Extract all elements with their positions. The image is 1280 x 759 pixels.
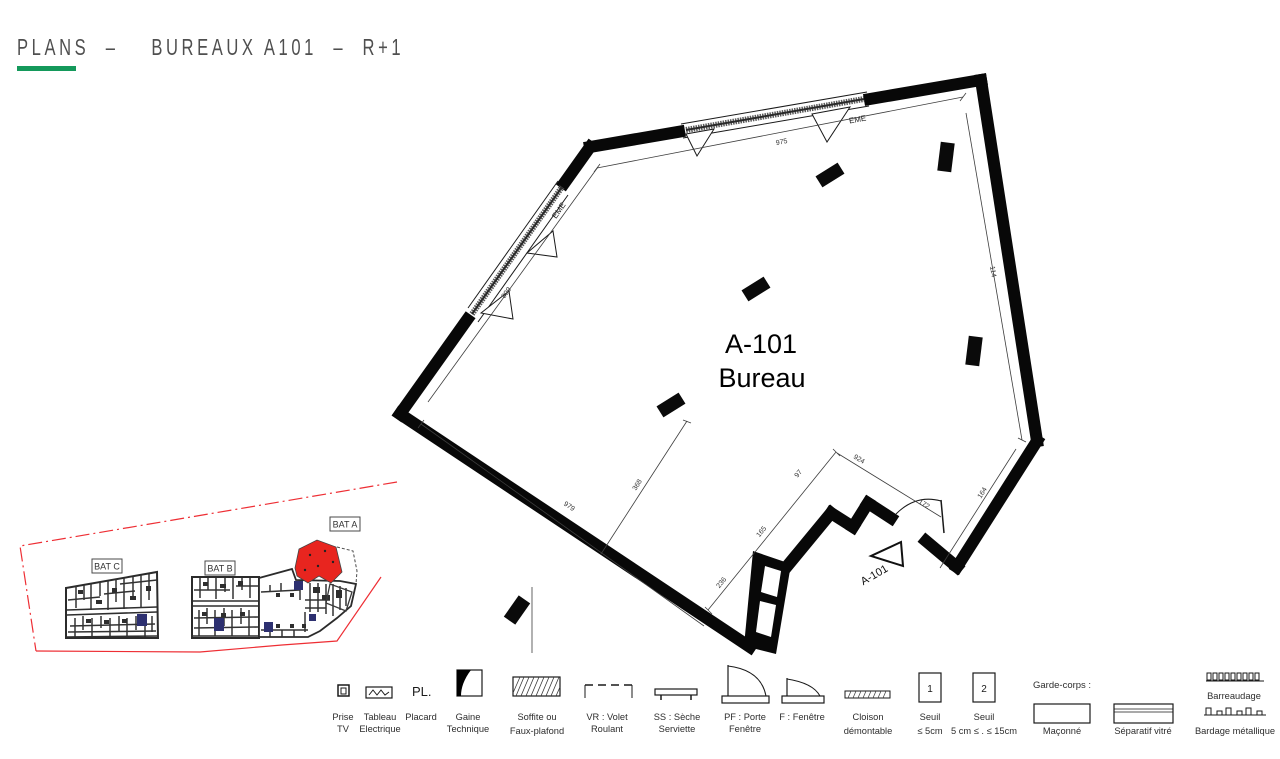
svg-text:Bureau: Bureau	[718, 363, 805, 393]
svg-text:Cloison: Cloison	[852, 712, 883, 722]
svg-text:Electrique: Electrique	[359, 724, 400, 734]
svg-text:114: 114	[988, 266, 997, 278]
svg-text:164: 164	[977, 486, 989, 500]
svg-text:BAT C: BAT C	[94, 562, 120, 572]
svg-text:Gaine: Gaine	[456, 712, 481, 722]
svg-text:EME: EME	[848, 114, 867, 126]
svg-text:Bardage métallique: Bardage métallique	[1195, 726, 1275, 736]
svg-text:924: 924	[852, 454, 866, 466]
svg-text:1: 1	[927, 684, 933, 695]
svg-text:TV: TV	[337, 724, 350, 734]
svg-text:2: 2	[981, 684, 987, 695]
svg-text:Séparatif vitré: Séparatif vitré	[1114, 726, 1171, 736]
svg-text:165: 165	[755, 525, 768, 539]
svg-text:PF : Porte: PF : Porte	[724, 712, 766, 722]
svg-text:BAT A: BAT A	[333, 520, 358, 530]
svg-text:Tableau: Tableau	[364, 712, 397, 722]
svg-text:Prise: Prise	[332, 712, 353, 722]
svg-text:Faux-plafond: Faux-plafond	[510, 726, 564, 736]
svg-text:97: 97	[794, 469, 804, 480]
svg-text:Serviette: Serviette	[659, 724, 696, 734]
svg-text:Seuil: Seuil	[920, 712, 941, 722]
svg-text:Garde-corps :: Garde-corps :	[1033, 680, 1091, 691]
svg-text:F : Fenêtre: F : Fenêtre	[779, 712, 824, 722]
svg-text:PL.: PL.	[412, 684, 432, 699]
svg-text:BAT B: BAT B	[207, 564, 232, 574]
svg-text:démontable: démontable	[844, 726, 893, 736]
svg-text:Soffite ou: Soffite ou	[517, 712, 556, 722]
svg-text:979: 979	[562, 501, 576, 513]
svg-text:Placard: Placard	[405, 712, 437, 722]
svg-text:VR : Volet: VR : Volet	[586, 712, 628, 722]
svg-text:Maçonné: Maçonné	[1043, 726, 1081, 736]
svg-text:A-101: A-101	[725, 329, 797, 359]
svg-text:Technique: Technique	[447, 724, 489, 734]
svg-text:A-101: A-101	[859, 563, 890, 588]
svg-text:SS : Sèche: SS : Sèche	[654, 712, 701, 722]
svg-text:5 cm ≤ . ≤ 15cm: 5 cm ≤ . ≤ 15cm	[951, 726, 1017, 736]
svg-text:975: 975	[775, 138, 788, 147]
svg-text:Seuil: Seuil	[974, 712, 995, 722]
svg-text:≤ 5cm: ≤ 5cm	[917, 726, 943, 736]
svg-text:Barreaudage: Barreaudage	[1207, 691, 1261, 701]
svg-text:Roulant: Roulant	[591, 724, 623, 734]
svg-text:Fenêtre: Fenêtre	[729, 724, 761, 734]
